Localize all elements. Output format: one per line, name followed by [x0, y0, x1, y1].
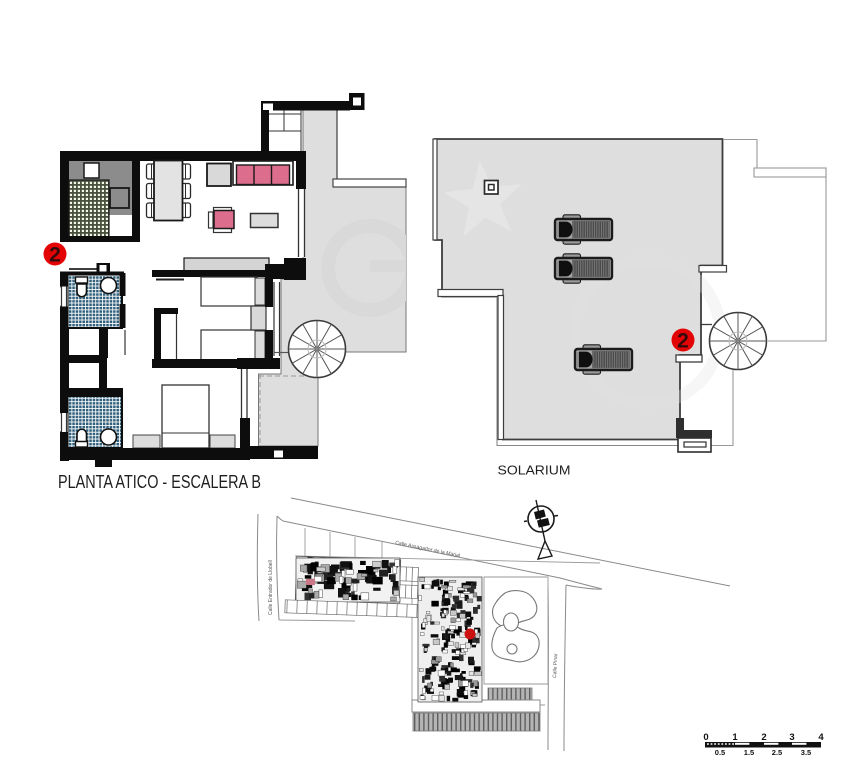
svg-text:1.5: 1.5	[744, 748, 754, 757]
svg-text:2: 2	[49, 244, 61, 267]
svg-text:2: 2	[761, 732, 766, 743]
svg-text:3: 3	[789, 732, 794, 743]
svg-text:1: 1	[732, 732, 738, 743]
svg-text:4: 4	[818, 732, 824, 743]
svg-text:0.5: 0.5	[715, 748, 725, 757]
svg-text:2: 2	[677, 330, 689, 353]
svg-text:Calle Entrador de Llobell: Calle Entrador de Llobell	[268, 560, 274, 615]
svg-text:2.5: 2.5	[772, 748, 782, 757]
svg-text:0: 0	[703, 732, 708, 743]
svg-text:PLANTA ATICO - ESCALERA B: PLANTA ATICO - ESCALERA B	[58, 472, 261, 492]
svg-text:3.5: 3.5	[801, 748, 811, 757]
svg-text:SOLARIUM: SOLARIUM	[498, 463, 571, 478]
